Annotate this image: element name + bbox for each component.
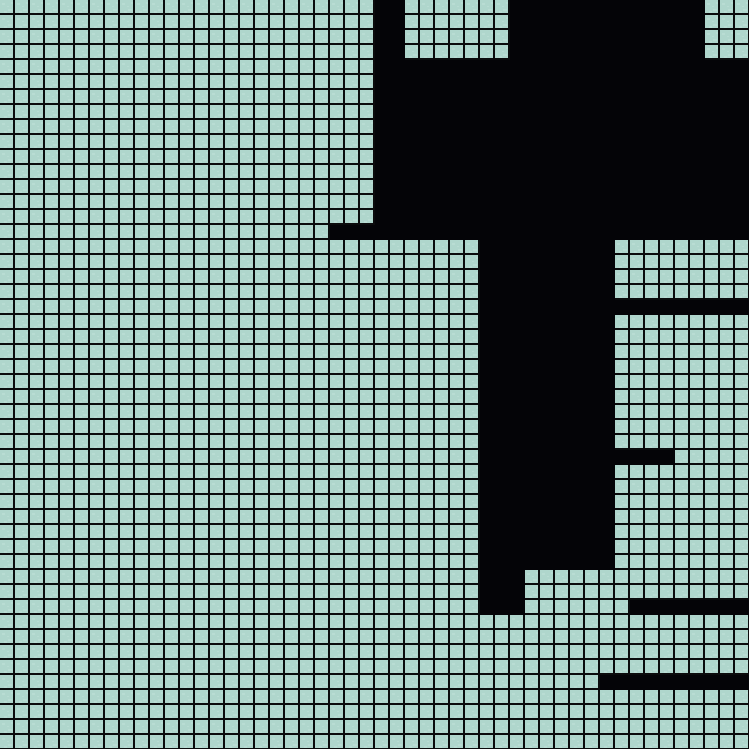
filled-pixel-run — [480, 240, 615, 570]
filled-pixel-run — [330, 225, 749, 240]
filled-pixel-run — [480, 570, 525, 615]
filled-pixel-run — [600, 675, 749, 690]
filled-pixel-run — [630, 600, 749, 615]
filled-pixel-run — [375, 60, 749, 225]
filled-pixel-run — [615, 450, 675, 465]
filled-pixel-run — [510, 0, 705, 60]
pixel-grid-canvas[interactable] — [0, 0, 749, 749]
zoomed-canvas-viewport — [0, 0, 749, 749]
filled-pixel-run — [375, 0, 405, 60]
filled-pixel-run — [615, 300, 749, 315]
